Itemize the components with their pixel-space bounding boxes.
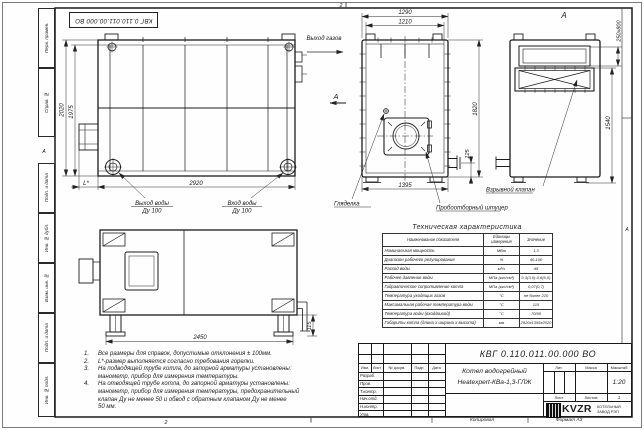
bottom-view [79, 230, 310, 336]
table-row: Рабочее давление водыМПа (кгс/см²)0,3(3,… [383, 274, 553, 283]
spec-col-name: Наименование показателя [383, 234, 484, 247]
col-data: Дата [428, 363, 445, 372]
label-water-in: Вход воды [227, 201, 257, 207]
note-3: 3. На подводящей трубе котла, до запорно… [84, 366, 324, 381]
row-nkontr: Н.контр. [360, 403, 383, 411]
side-view-a [496, 34, 600, 183]
col-dokum: № докум. [383, 363, 411, 372]
plan-view [79, 34, 307, 176]
table-row: Диапазон рабочего регулирования%40-100 [383, 256, 553, 265]
row-nachotd: Нач.отд. [360, 395, 383, 403]
note-1: 1. Все размеры для справок, допустимые о… [84, 351, 324, 359]
sheets-value: 1 [607, 393, 631, 401]
product-name-line2: Heatexpert-КВа-1,3-ГЛЖ [446, 377, 543, 388]
dim-2450: 2450 [192, 335, 207, 341]
note-4: 4. На отводящей трубе котла, до запорной… [84, 381, 324, 411]
format-label: Формат А3 [534, 418, 604, 423]
stamp-inv-dubl: Инв. № дубл. [38, 213, 55, 263]
spec-header-row: Наименование показателя Единицы измерени… [383, 234, 553, 247]
table-row: Температура уходящих газов°Сне более 220 [383, 292, 553, 301]
spec-table-title: Техническая характеристика [382, 224, 552, 231]
kvzr-logo-icon [546, 403, 561, 418]
dim-1975: 1975 [69, 105, 75, 119]
stamp-podp-data-2: Подп. и дата [38, 313, 55, 363]
kvzr-logo-text: KVZR [562, 403, 592, 415]
zone-right: А [624, 227, 629, 233]
lit-label: Лит. [543, 363, 575, 371]
stamp-perv-primen: Перв. примен. [38, 8, 55, 68]
spec-table: Наименование показателя Единицы измерени… [382, 233, 553, 328]
table-row: Расход водым³/ч45 [383, 265, 553, 274]
mass-label: Масса [575, 363, 607, 371]
table-row: Номинальная мощностьМВт1,3 [383, 247, 553, 256]
stamp-vzam-inv: Взам. инв. № [38, 263, 55, 313]
table-row: Гидравлическое сопротивление котлаМПа (к… [383, 283, 553, 292]
label-water-out: Выход воды [135, 201, 169, 207]
dim-1395: 1395 [398, 183, 412, 189]
stamp-podp-data-1: Подп. и дата [38, 163, 55, 213]
label-explosion-valve: Взрывной клапан [486, 187, 535, 194]
label-sampling-fitting: Пробоотборный штуцер [436, 205, 508, 212]
table-row: Габариты котла (длина х ширина х высота)… [383, 319, 553, 328]
zone-left: А [41, 149, 46, 155]
dim-1820: 1820 [473, 102, 479, 116]
dim-1540: 1540 [606, 116, 612, 130]
dim-125: 125 [465, 148, 471, 158]
inverted-doc-stamp: КВГ 0.110.011.00.000 ВО [69, 12, 158, 28]
side-view-a-dims [486, 47, 622, 193]
row-razrab: Разраб. [360, 372, 383, 380]
col-list: Лист [371, 363, 383, 372]
company-name: КОТЕЛЬНЫЙ ЗАВОД РЭП [597, 405, 621, 415]
doc-number: КВГ 0.110.011.00.000 ВО [445, 344, 631, 363]
product-name: Котел водогрейный Heatexpert-КВа-1,3-ГЛЖ [446, 366, 543, 388]
zone-bottom: 2 [164, 420, 168, 426]
row-tkontr: Т.контр. [360, 387, 383, 395]
row-prov: Пров. [360, 380, 383, 388]
col-podp: Подп. [411, 363, 428, 372]
sheet-label: Лист [543, 393, 575, 401]
product-name-line1: Котел водогрейный [446, 366, 543, 377]
view-a-letter: А [560, 11, 566, 20]
dim-250x800: 250x800 [617, 20, 623, 43]
company-line1: КОТЕЛЬНЫЙ [597, 405, 621, 410]
bottom-view-texts: 2450 115 [192, 321, 313, 341]
zone-top: 2 [339, 3, 343, 9]
sheets-label: Листов [575, 393, 607, 401]
dim-l-star: L* [83, 181, 89, 187]
spec-table-block: Техническая характеристика Наименование … [382, 224, 552, 328]
bottom-view-dims [106, 315, 317, 345]
drawing-sheet: 2 2 А А 2020 [0, 0, 644, 430]
row-utv: Утв. [360, 410, 383, 418]
dim-1290: 1290 [398, 10, 412, 16]
label-gas-out: Выход газов [307, 36, 342, 42]
table-row: Максимальная рабочая температура воды°С1… [383, 301, 553, 310]
spec-col-unit: Единицы измерения [484, 234, 520, 247]
plan-view-texts: 2020 1975 2920 L* Выход газов Выход воды… [60, 36, 342, 215]
dim-2020: 2020 [60, 103, 66, 118]
dim-2920: 2920 [188, 181, 203, 187]
col-izm: Изм. [359, 363, 371, 372]
label-water-out-dn: Ду 100 [142, 209, 163, 215]
stamp-sprav-no: Справ. № [38, 68, 55, 137]
dim-1210: 1210 [398, 20, 412, 26]
copied-label: Копировал [440, 418, 524, 423]
stamp-inv-podl: Инв. № подл. [38, 363, 55, 417]
front-view [360, 34, 461, 183]
section-arrow-letter: А [332, 92, 338, 101]
dim-115: 115 [307, 321, 313, 331]
inverted-doc-number: КВГ 0.110.011.00.000 ВО [75, 17, 153, 24]
company-line2: ЗАВОД РЭП [597, 410, 621, 415]
title-block: КВГ 0.110.011.00.000 ВО Изм. Лист № доку… [358, 343, 632, 417]
notes-block: 1. Все размеры для справок, допустимые о… [84, 351, 324, 412]
label-sight-glass: Гляделка [334, 202, 360, 208]
table-row: Температура воды (вход/выход)°С70/95 [383, 310, 553, 319]
label-water-in-dn: Ду 100 [232, 209, 253, 215]
scale-value: 1:20 [607, 371, 631, 393]
spec-col-value: Значение [520, 234, 553, 247]
scale-label: Масштаб [607, 363, 631, 371]
